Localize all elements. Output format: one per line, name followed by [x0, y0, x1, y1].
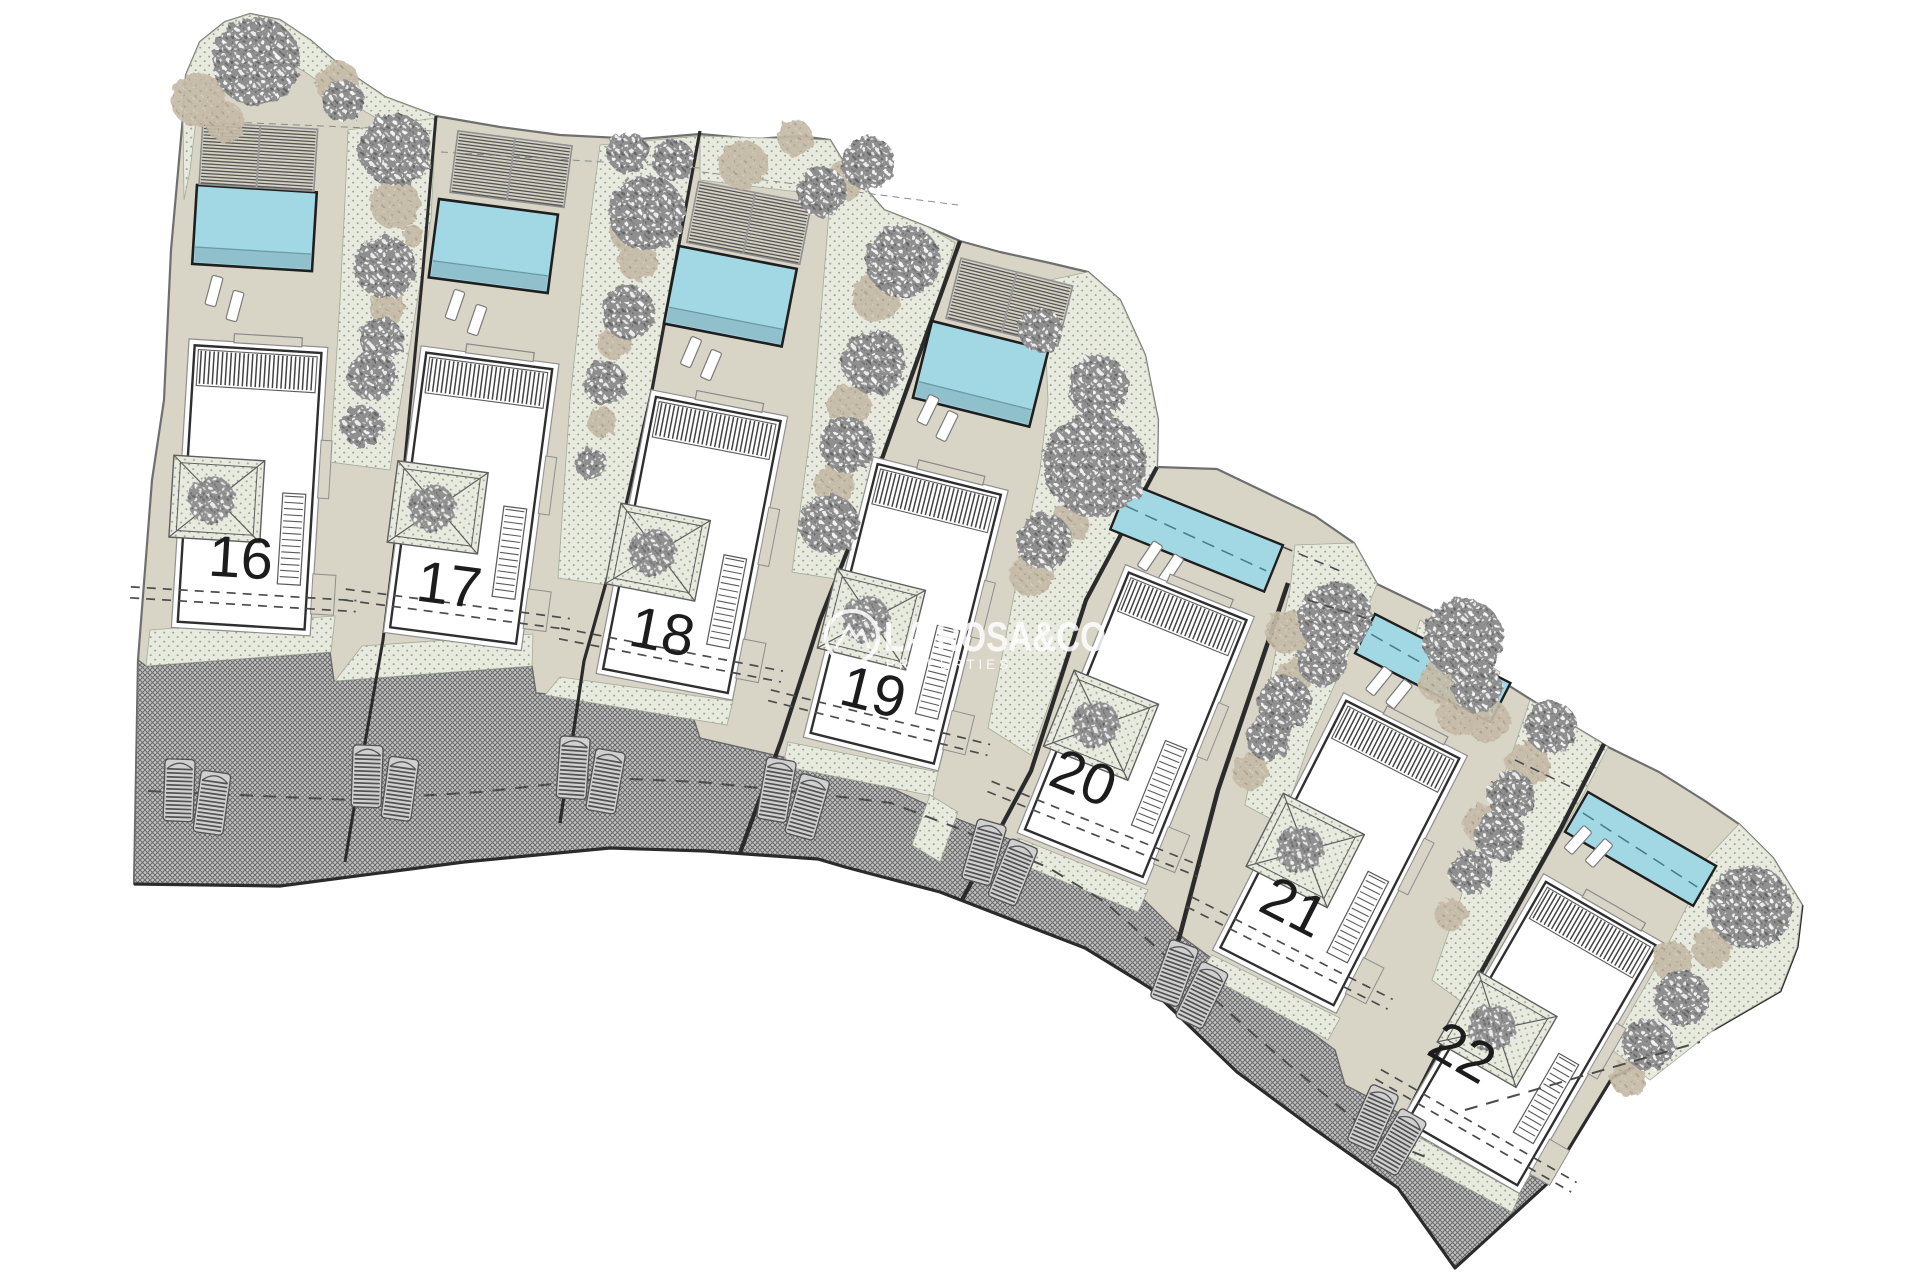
svg-text:18: 18: [624, 594, 700, 670]
svg-text:LA ROSA&CO: LA ROSA&CO: [884, 613, 1106, 660]
svg-text:16: 16: [207, 524, 275, 593]
svg-text:PROPERTIES: PROPERTIES: [886, 657, 1012, 672]
svg-text:17: 17: [413, 549, 485, 622]
